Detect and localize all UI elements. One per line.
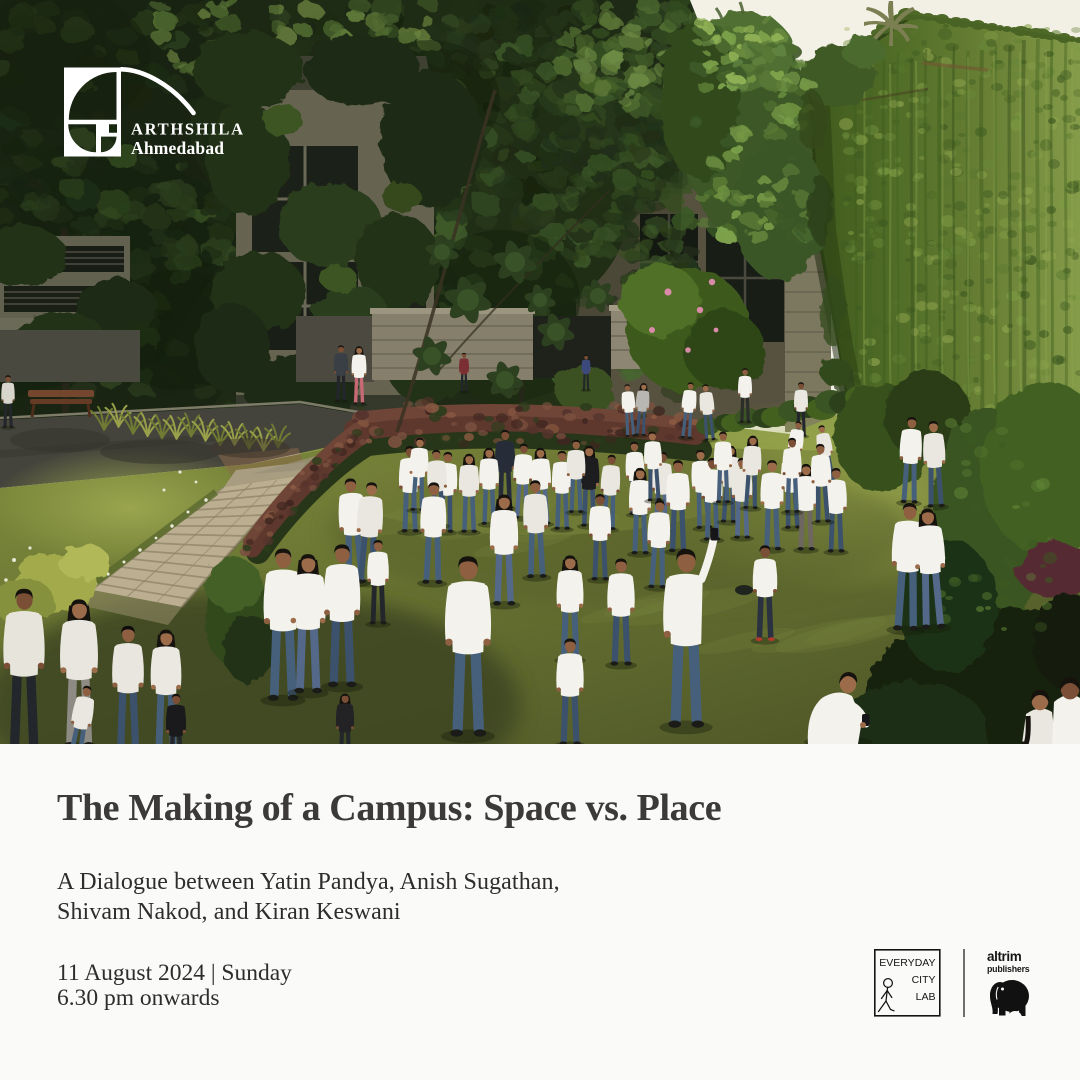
svg-text:Ahmedabad: Ahmedabad	[131, 138, 224, 158]
svg-text:altrim: altrim	[987, 949, 1022, 964]
svg-text:CITY: CITY	[912, 974, 936, 986]
svg-text:publishers: publishers	[987, 964, 1030, 974]
svg-text:ARTHSHILA: ARTHSHILA	[131, 120, 245, 139]
svg-text:EVERYDAY: EVERYDAY	[879, 957, 935, 969]
svg-text:LAB: LAB	[916, 991, 936, 1003]
